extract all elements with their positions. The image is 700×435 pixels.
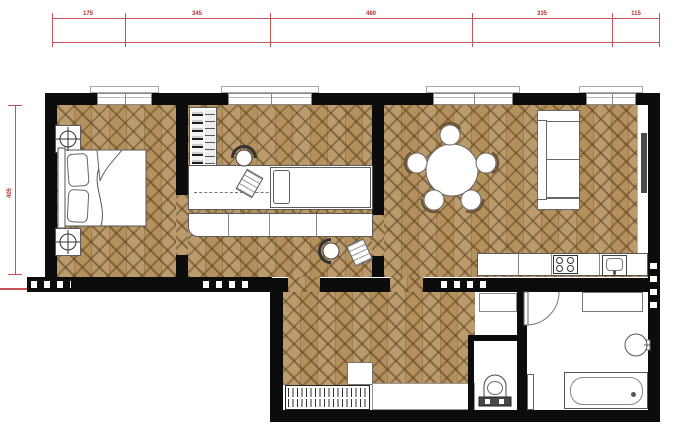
shoe-rack-shelf [286,397,369,399]
wall-hatch [441,281,491,288]
window-sill [579,86,643,93]
sofa-cushion [546,159,580,198]
wall-bedroom-kids-upper [176,105,188,195]
low-cabinet [188,213,373,237]
window-2 [228,93,312,105]
wall-hatch [31,281,71,288]
door-threshold [288,277,320,292]
window-sill [426,86,520,93]
window-sill [90,86,159,93]
dim-top-tick [270,13,271,47]
dim-top-line-1 [52,18,660,19]
hall-cabinet-area [372,383,475,410]
dim-label-left: 405 [7,188,13,198]
window-4 [586,93,636,105]
wall-wc-top [468,335,517,341]
wall-hall-left [270,292,283,422]
hanging-clothes [205,110,215,164]
dim-left-line [15,105,16,275]
wall-kids-living-lower [372,256,384,277]
vent-shaft-hatch [650,256,657,308]
nightstand [55,125,81,153]
dim-label-2: 345 [192,11,202,17]
floor-hallway [283,292,475,385]
door-threshold [372,215,384,256]
window-3 [433,93,513,105]
dim-left-tick [8,105,22,106]
wall-wc-bath [517,292,527,410]
wall-bottom-exterior [270,410,660,422]
wall-left-exterior [45,93,57,285]
dim-top-tick [52,13,53,47]
dim-label-1: 175 [83,11,93,17]
sofa-cushion [546,121,580,160]
wall-bedroom-kids-lower [176,255,188,277]
dim-top-line-2 [52,42,660,43]
wardrobe [189,107,217,167]
door-threshold [176,195,188,255]
kitchen-sink [602,255,627,276]
dim-top-tick [612,13,613,47]
hall-niche [347,362,373,385]
bathroom-door-leaf [527,374,534,410]
floor-living-room [384,105,648,277]
wall-hall-band-b [320,278,390,292]
door-threshold [390,277,423,292]
dim-label-4: 335 [537,11,547,17]
nightstand [55,228,81,256]
tv [641,133,647,193]
section-mark [0,288,27,290]
bathtub [564,372,648,409]
wall-wc-left [468,335,474,410]
wall-hall-band-a [270,278,288,292]
closet-shelf [479,293,517,312]
desk-dashed-line [194,192,279,193]
dim-top-tick [472,13,473,47]
pillow [273,170,290,204]
cooktop [553,255,578,274]
dim-top-tick [659,13,660,47]
wall-kids-living-upper [372,105,384,215]
dim-label-5: 115 [631,11,641,17]
window-1 [97,93,152,105]
floor-wc [474,341,517,410]
dim-left-tick [8,274,22,275]
floor-plan: 175 345 480 335 115 405 [0,0,700,435]
window-sill [221,86,319,93]
bathroom-cabinet [582,292,643,312]
dim-top-tick [125,13,126,47]
wall-hatch [203,281,251,288]
hanging-clothes [192,110,203,164]
dim-label-3: 480 [366,11,376,17]
shoe-rack [285,385,370,410]
